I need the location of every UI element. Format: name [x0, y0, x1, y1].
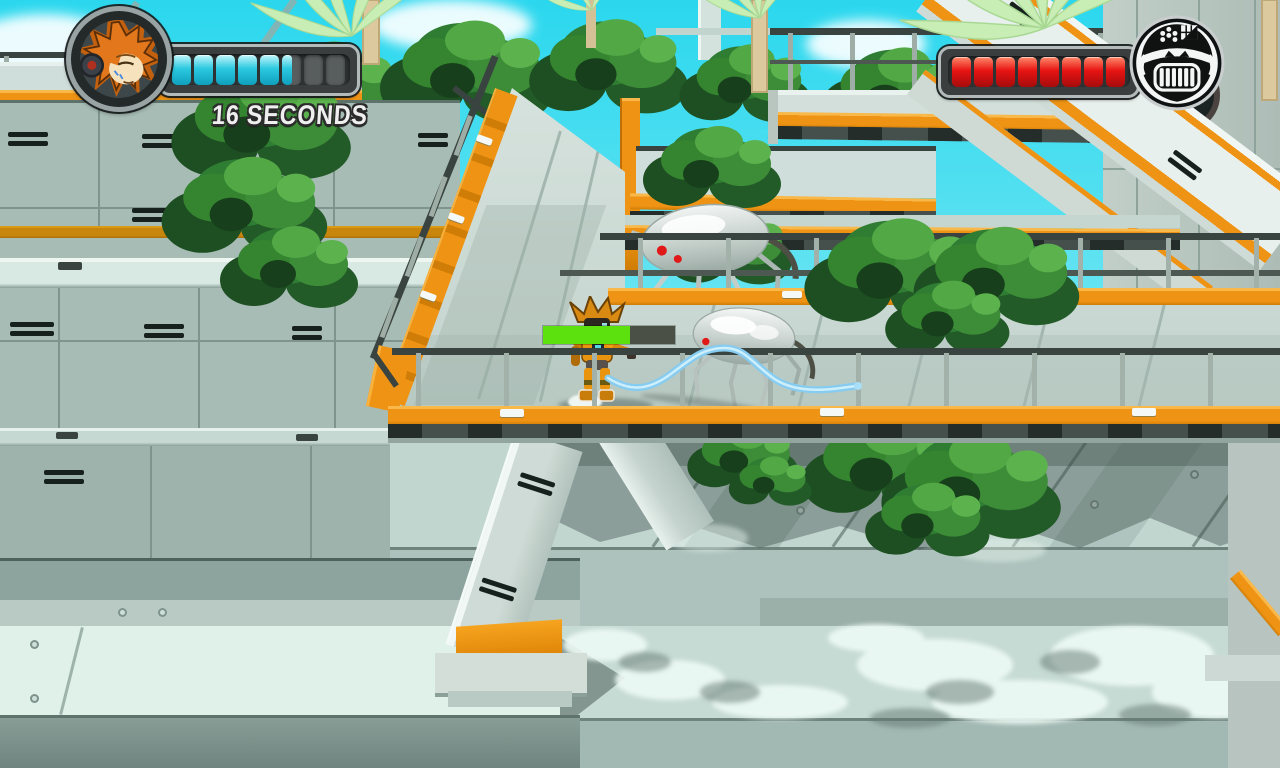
- pillar-step-lower: [448, 691, 572, 707]
- player-health-segments: [168, 54, 350, 86]
- bridge-underside: [388, 424, 1280, 438]
- edge-bolt: [158, 608, 167, 617]
- player-health-bar: [158, 44, 360, 96]
- panel-bolt: [30, 694, 39, 703]
- health-segment: [260, 55, 279, 85]
- player-portrait: [66, 6, 172, 112]
- edge-bolt: [118, 608, 127, 617]
- health-segment: [304, 55, 323, 85]
- charge-meter: [543, 326, 675, 344]
- health-segment: [194, 55, 213, 85]
- health-segment: [974, 57, 993, 87]
- panel-seam: [59, 627, 84, 715]
- health-segment: [1106, 57, 1125, 87]
- boss-portrait-icon: [1128, 14, 1226, 112]
- health-segment: [1062, 57, 1081, 87]
- player-portrait-icon: [71, 11, 167, 107]
- front-edge-clip: [1132, 408, 1156, 416]
- beam-base-footing: [1205, 655, 1280, 681]
- timer-label: 16 SECONDS: [194, 100, 385, 131]
- lower-walkway-front: [0, 715, 580, 768]
- health-segment: [238, 55, 257, 85]
- health-segment: [172, 55, 191, 85]
- charge-meter-fill: [543, 326, 630, 344]
- health-segment: [216, 55, 235, 85]
- health-segment: [282, 55, 301, 85]
- front-edge-clip: [500, 409, 524, 417]
- boss-portrait: [1128, 14, 1226, 112]
- game-viewport[interactable]: 16 SECONDS: [0, 0, 1280, 768]
- boss-health-segments: [948, 56, 1130, 88]
- health-segment: [952, 57, 971, 87]
- health-segment: [1040, 57, 1059, 87]
- bridge-under-lip: [388, 438, 1280, 443]
- boss-health-bar: [938, 46, 1140, 98]
- health-segment: [326, 55, 345, 85]
- health-segment: [1018, 57, 1037, 87]
- health-segment: [996, 57, 1015, 87]
- panel-bolt: [30, 640, 39, 649]
- health-segment: [1084, 57, 1103, 87]
